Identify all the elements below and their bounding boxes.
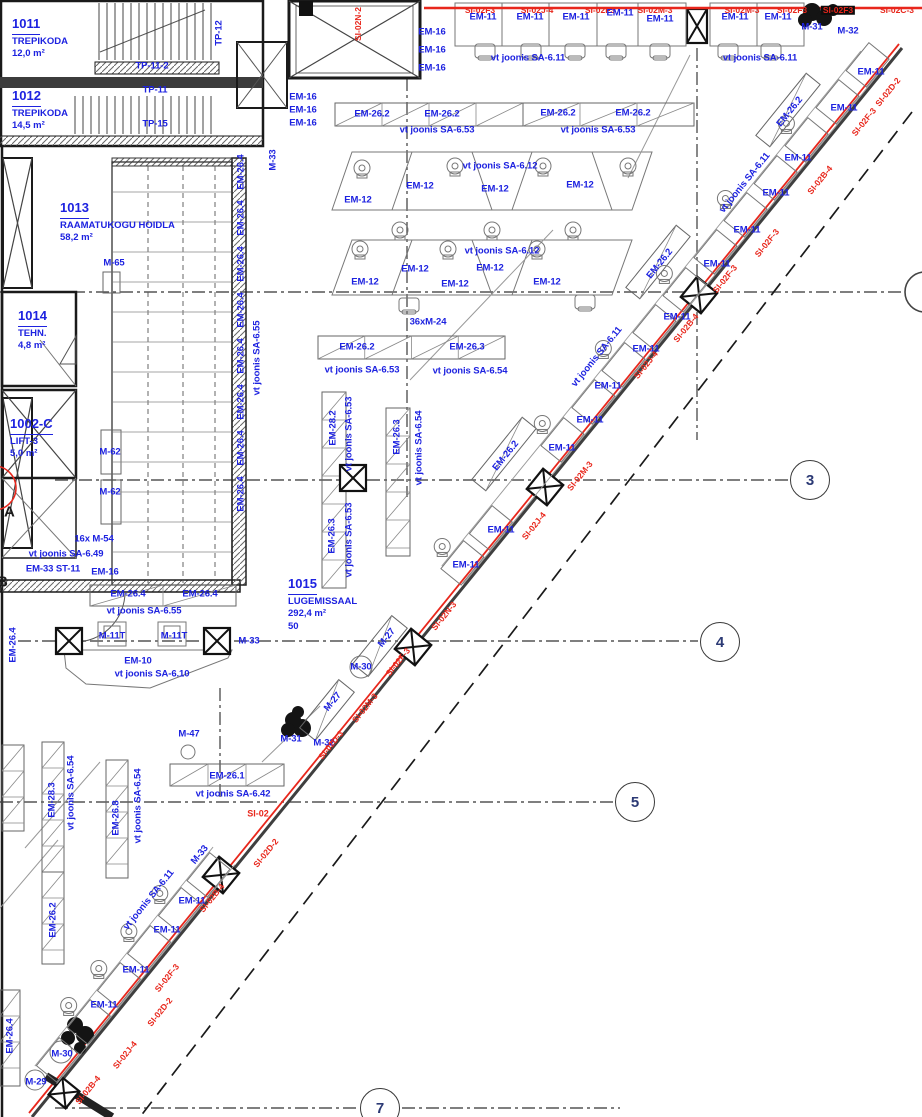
equipment-code-label: EM-26.2 — [48, 902, 58, 937]
equipment-code-label: EM-11 — [563, 12, 590, 22]
equipment-code-label: M-33 — [190, 844, 211, 866]
equipment-code-label: vt joonis SA-6.54 — [133, 769, 143, 844]
si-code-label: SI-02D-2 — [874, 76, 902, 108]
equipment-code-label: M-47 — [178, 729, 199, 739]
equipment-code-label: vt joonis SA-6.54 — [414, 411, 424, 486]
equipment-code-label: EM-12 — [344, 195, 371, 205]
equipment-code-label: EM-28.3 — [47, 782, 57, 817]
equipment-code-label: EM-11 — [831, 103, 858, 113]
equipment-code-label: EM-26.3 — [327, 518, 337, 553]
equipment-code-label: vt joonis SA-6.12 — [465, 246, 540, 256]
si-code-label: SI-02F-3 — [384, 646, 411, 677]
equipment-code-label: 36xM-24 — [410, 317, 447, 327]
equipment-code-label: vt joonis SA-6.53 — [325, 365, 400, 375]
equipment-code-label: M-11T — [161, 631, 187, 641]
equipment-code-label: EM-11 — [858, 67, 885, 77]
room-number: 1015 — [288, 576, 317, 595]
equipment-code-label: EM-11 — [91, 1000, 118, 1010]
equipment-code-label: vt joonis SA-6.54 — [433, 366, 508, 376]
grid-bubble-5: 5 — [615, 782, 655, 822]
equipment-code-label: EM-26.1 — [209, 771, 244, 781]
equipment-code-label: M-33 — [238, 636, 259, 646]
si-code-label: SI-02N-3 — [430, 600, 458, 632]
equipment-code-label: EM-26.4 — [8, 627, 18, 662]
equipment-code-label: EM-26.2 — [775, 95, 805, 128]
room-number: 1002-C — [10, 416, 53, 435]
equipment-code-label: EM-16 — [418, 27, 445, 37]
equipment-code-label: EM-26.4 — [182, 589, 217, 599]
si-code-label: SI-02D-2 — [252, 837, 280, 869]
equipment-code-label: EM-12 — [476, 263, 503, 273]
equipment-code-label: EM-12 — [401, 264, 428, 274]
equipment-code-label: TP-11-2 — [135, 61, 168, 71]
equipment-code-label: EM-11 — [123, 965, 150, 975]
equipment-code-label: EM-11 — [577, 415, 604, 425]
equipment-code-label: M-31 — [280, 734, 301, 744]
si-code-label: SI-02B-4 — [806, 164, 834, 196]
si-code-label: SI-02F3 — [821, 6, 855, 15]
equipment-code-label: vt joonis SA-6.12 — [463, 161, 538, 171]
equipment-code-label: vt joonis SA-6.53 — [561, 125, 636, 135]
equipment-code-label: EM-26.4 — [110, 589, 145, 599]
room-label-1002-C: 1002-CLIFT-35,0 m² — [10, 414, 53, 461]
equipment-code-label: vt joonis SA-6.49 — [29, 549, 104, 559]
equipment-code-label: EM-11 — [549, 443, 576, 453]
equipment-code-label: EM-26.4 — [236, 476, 246, 511]
equipment-code-label: EM-16 — [289, 118, 316, 128]
equipment-code-label: EM-26.2 — [424, 109, 459, 119]
grid-letter-A: A — [4, 504, 15, 521]
equipment-code-label: EM-11 — [765, 12, 792, 22]
si-code-label: SI-02M-3 — [566, 460, 595, 493]
room-label-1011: 1011TREPIKODA12,0 m² — [12, 14, 68, 61]
si-code-label: SI-02J-4 — [632, 350, 659, 381]
equipment-code-label: EM-16 — [91, 567, 118, 577]
equipment-code-label: EM-26.4 — [236, 338, 246, 373]
equipment-code-label: EM-26.4 — [236, 292, 246, 327]
equipment-code-label: vt joonis SA-6.53 — [344, 397, 354, 472]
equipment-code-label: EM-26.4 — [236, 200, 246, 235]
equipment-code-label: EM-26.2 — [615, 108, 650, 118]
grid-bubble-4: 4 — [700, 622, 740, 662]
equipment-code-label: M-32 — [837, 26, 858, 36]
room-info: TREPIKODA — [12, 36, 68, 48]
equipment-code-label: EM-33 ST-11 — [26, 564, 80, 574]
si-code-label: SI-02F-3 — [153, 962, 180, 993]
equipment-code-label: vt joonis SA-6.10 — [115, 669, 190, 679]
equipment-code-label: vt joonis SA-6.55 — [252, 321, 262, 396]
equipment-code-label: vt joonis SA-6.11 — [491, 53, 565, 63]
grid-bubble-3: 3 — [790, 460, 830, 500]
equipment-code-label: EM-26.4 — [236, 384, 246, 419]
equipment-code-label: EM-26.4 — [236, 430, 246, 465]
equipment-code-label: 16x M-54 — [74, 534, 113, 544]
equipment-code-label: EM-26.4 — [236, 246, 246, 281]
equipment-code-label: EM-11 — [517, 12, 544, 22]
equipment-code-label: M-29 — [25, 1077, 46, 1087]
equipment-code-label: EM-12 — [533, 277, 560, 287]
annotation-layer: TP-11-2TP-11TP-15TP-12M-33EM-16EM-16EM-1… — [0, 0, 922, 1117]
equipment-code-label: EM-11 — [734, 225, 761, 235]
equipment-code-label: EM-16 — [289, 105, 316, 115]
equipment-code-label: EM-26.2 — [339, 342, 374, 352]
room-label-1012: 1012TREPIKODA14,5 m² — [12, 86, 68, 133]
equipment-code-label: M-62 — [99, 447, 120, 457]
si-code-label: SI-02M-3 — [351, 692, 380, 725]
equipment-code-label: M-11T — [99, 631, 125, 641]
equipment-code-label: EM-11 — [763, 188, 790, 198]
room-number: 1011 — [12, 16, 40, 35]
room-label-1015: 1015LUGEMISSAAL292,4 m²50 — [288, 574, 357, 633]
equipment-code-label: EM-11 — [154, 925, 181, 935]
room-label-1014: 1014TEHN.4,8 m² — [18, 306, 47, 353]
si-code-label: SI-02B-4 — [74, 1074, 102, 1106]
equipment-code-label: vt joonis SA-6.42 — [196, 789, 271, 799]
si-code-label: SI-02C-3 — [880, 6, 914, 15]
equipment-code-label: M-65 — [103, 258, 124, 268]
equipment-code-label: EM-16 — [418, 45, 445, 55]
equipment-code-label: vt joonis SA-6.11 — [122, 868, 176, 932]
room-number: 1013 — [60, 200, 89, 219]
equipment-code-label: EM-10 — [124, 656, 151, 666]
si-code-label: SI-02D-2 — [146, 996, 174, 1028]
equipment-code-label: vt joonis SA-6.55 — [107, 606, 182, 616]
equipment-code-label: TP-15 — [142, 119, 167, 129]
equipment-code-label: EM-11 — [595, 381, 622, 391]
equipment-code-label: vt joonis SA-6.53 — [344, 503, 354, 578]
room-number: 1014 — [18, 308, 47, 327]
si-code-label: SI-02J-4 — [520, 511, 547, 542]
si-code-label: SI-02J-4 — [111, 1040, 138, 1071]
equipment-code-label: vt joonis SA-6.11 — [723, 53, 797, 63]
equipment-code-label: M-30 — [350, 662, 371, 672]
room-info: 4,8 m² — [18, 340, 47, 352]
room-info: 58,2 m² — [60, 232, 175, 244]
equipment-code-label: EM-11 — [470, 12, 497, 22]
room-info: RAAMATUKOGU HOIDLA — [60, 220, 175, 232]
si-code-label: SI-02 — [247, 810, 269, 819]
room-info: 292,4 m² — [288, 608, 357, 620]
room-info: LUGEMISSAAL — [288, 596, 357, 608]
equipment-code-label: EM-16 — [289, 92, 316, 102]
equipment-code-label: EM-11 — [607, 8, 634, 18]
equipment-code-label: EM-26.2 — [540, 108, 575, 118]
equipment-code-label: EM-12 — [351, 277, 378, 287]
equipment-code-label: EM-26.2 — [645, 247, 675, 280]
grid-letter-B: B — [0, 574, 8, 591]
equipment-code-label: M-30 — [51, 1049, 72, 1059]
equipment-code-label: EM-12 — [406, 181, 433, 191]
equipment-code-label: EM-26.2 — [354, 109, 389, 119]
equipment-code-label: EM-12 — [481, 184, 508, 194]
equipment-code-label: EM-12 — [566, 180, 593, 190]
equipment-code-label: vt joonis SA-6.54 — [66, 756, 76, 831]
equipment-code-label: EM-26.8 — [111, 800, 121, 835]
equipment-code-label: EM-16 — [418, 63, 445, 73]
room-info: 50 — [288, 621, 357, 633]
room-info: TREPIKODA — [12, 108, 68, 120]
si-code-label: SI-02N-2 — [354, 7, 363, 41]
grid-bubble-7: 7 — [360, 1088, 400, 1117]
equipment-code-label: M-31 — [801, 22, 822, 32]
room-number: 1012 — [12, 88, 41, 107]
floor-plan-page: TP-11-2TP-11TP-15TP-12M-33EM-16EM-16EM-1… — [0, 0, 922, 1117]
equipment-code-label: TP-12 — [214, 20, 224, 45]
room-label-1013: 1013RAAMATUKOGU HOIDLA58,2 m² — [60, 198, 175, 245]
room-info: 14,5 m² — [12, 120, 68, 132]
equipment-code-label: EM-26.3 — [449, 342, 484, 352]
equipment-code-label: vt joonis SA-6.11 — [718, 151, 772, 215]
room-info: 12,0 m² — [12, 48, 68, 60]
equipment-code-label: vt joonis SA-6.53 — [400, 125, 475, 135]
room-info: 5,0 m² — [10, 448, 53, 460]
equipment-code-label: EM-11 — [647, 14, 674, 24]
equipment-code-label: EM-12 — [441, 279, 468, 289]
equipment-code-label: EM-26.4 — [236, 154, 246, 189]
equipment-code-label: EM-26.2 — [491, 439, 521, 472]
equipment-code-label: EM-26.3 — [392, 419, 402, 454]
room-info: TEHN. — [18, 328, 47, 340]
equipment-code-label: TP-11 — [143, 85, 168, 95]
equipment-code-label: M-27 — [323, 691, 344, 713]
equipment-code-label: M-33 — [268, 149, 278, 170]
equipment-code-label: EM-11 — [722, 12, 749, 22]
equipment-code-label: EM-11 — [785, 153, 812, 163]
equipment-code-label: EM-11 — [453, 560, 480, 570]
equipment-code-label: EM-26.4 — [5, 1018, 15, 1053]
equipment-code-label: M-27 — [377, 627, 398, 649]
equipment-code-label: M-62 — [99, 487, 120, 497]
equipment-code-label: EM-11 — [488, 525, 515, 535]
equipment-code-label: EM-28.2 — [328, 410, 338, 445]
room-info: LIFT-3 — [10, 436, 53, 448]
